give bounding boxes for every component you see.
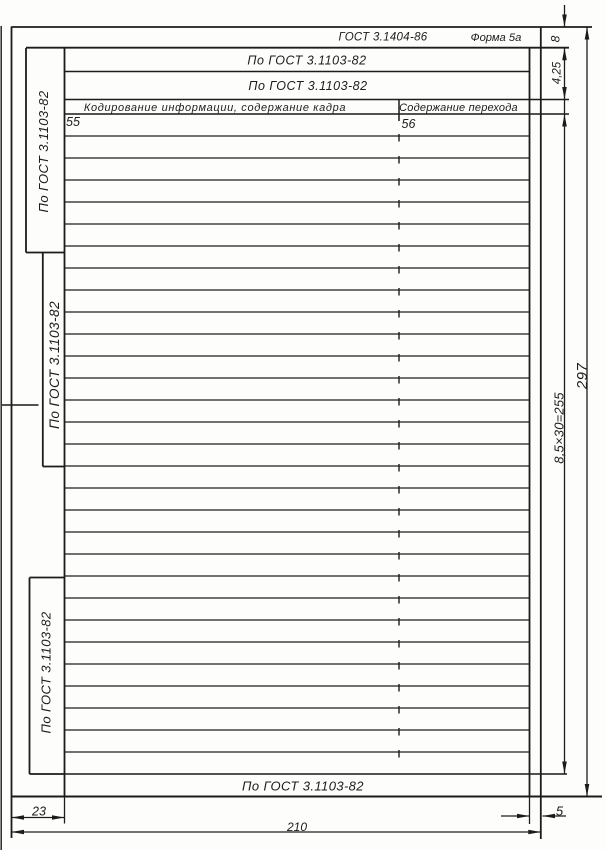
svg-text:ГОСТ 3.1404-86: ГОСТ 3.1404-86 [339,32,428,44]
svg-text:56: 56 [402,117,416,131]
svg-text:55: 55 [66,115,80,129]
svg-text:297: 297 [574,363,591,390]
svg-text:По ГОСТ 3.1103-82: По ГОСТ 3.1103-82 [242,779,364,794]
svg-text:Содержание перехода: Содержание перехода [399,102,518,114]
svg-text:5: 5 [556,804,564,819]
svg-text:4,25: 4,25 [552,61,564,84]
svg-text:По ГОСТ 3.1103-82: По ГОСТ 3.1103-82 [248,79,367,93]
svg-text:По ГОСТ 3.1103-82: По ГОСТ 3.1103-82 [36,90,51,212]
svg-text:210: 210 [286,820,307,834]
svg-text:8: 8 [549,35,563,42]
svg-text:По ГОСТ 3.1103-82: По ГОСТ 3.1103-82 [39,611,54,733]
svg-text:8,5×30=255: 8,5×30=255 [552,392,567,464]
svg-text:Кодирование информации, соде: Кодирование информации, содержание кадра [84,102,346,114]
svg-text:По ГОСТ 3.1103-82: По ГОСТ 3.1103-82 [47,301,62,429]
svg-text:Форма 5а: Форма 5а [471,32,522,44]
svg-text:23: 23 [31,805,46,819]
svg-text:По ГОСТ 3.1103-82: По ГОСТ 3.1103-82 [247,54,366,68]
